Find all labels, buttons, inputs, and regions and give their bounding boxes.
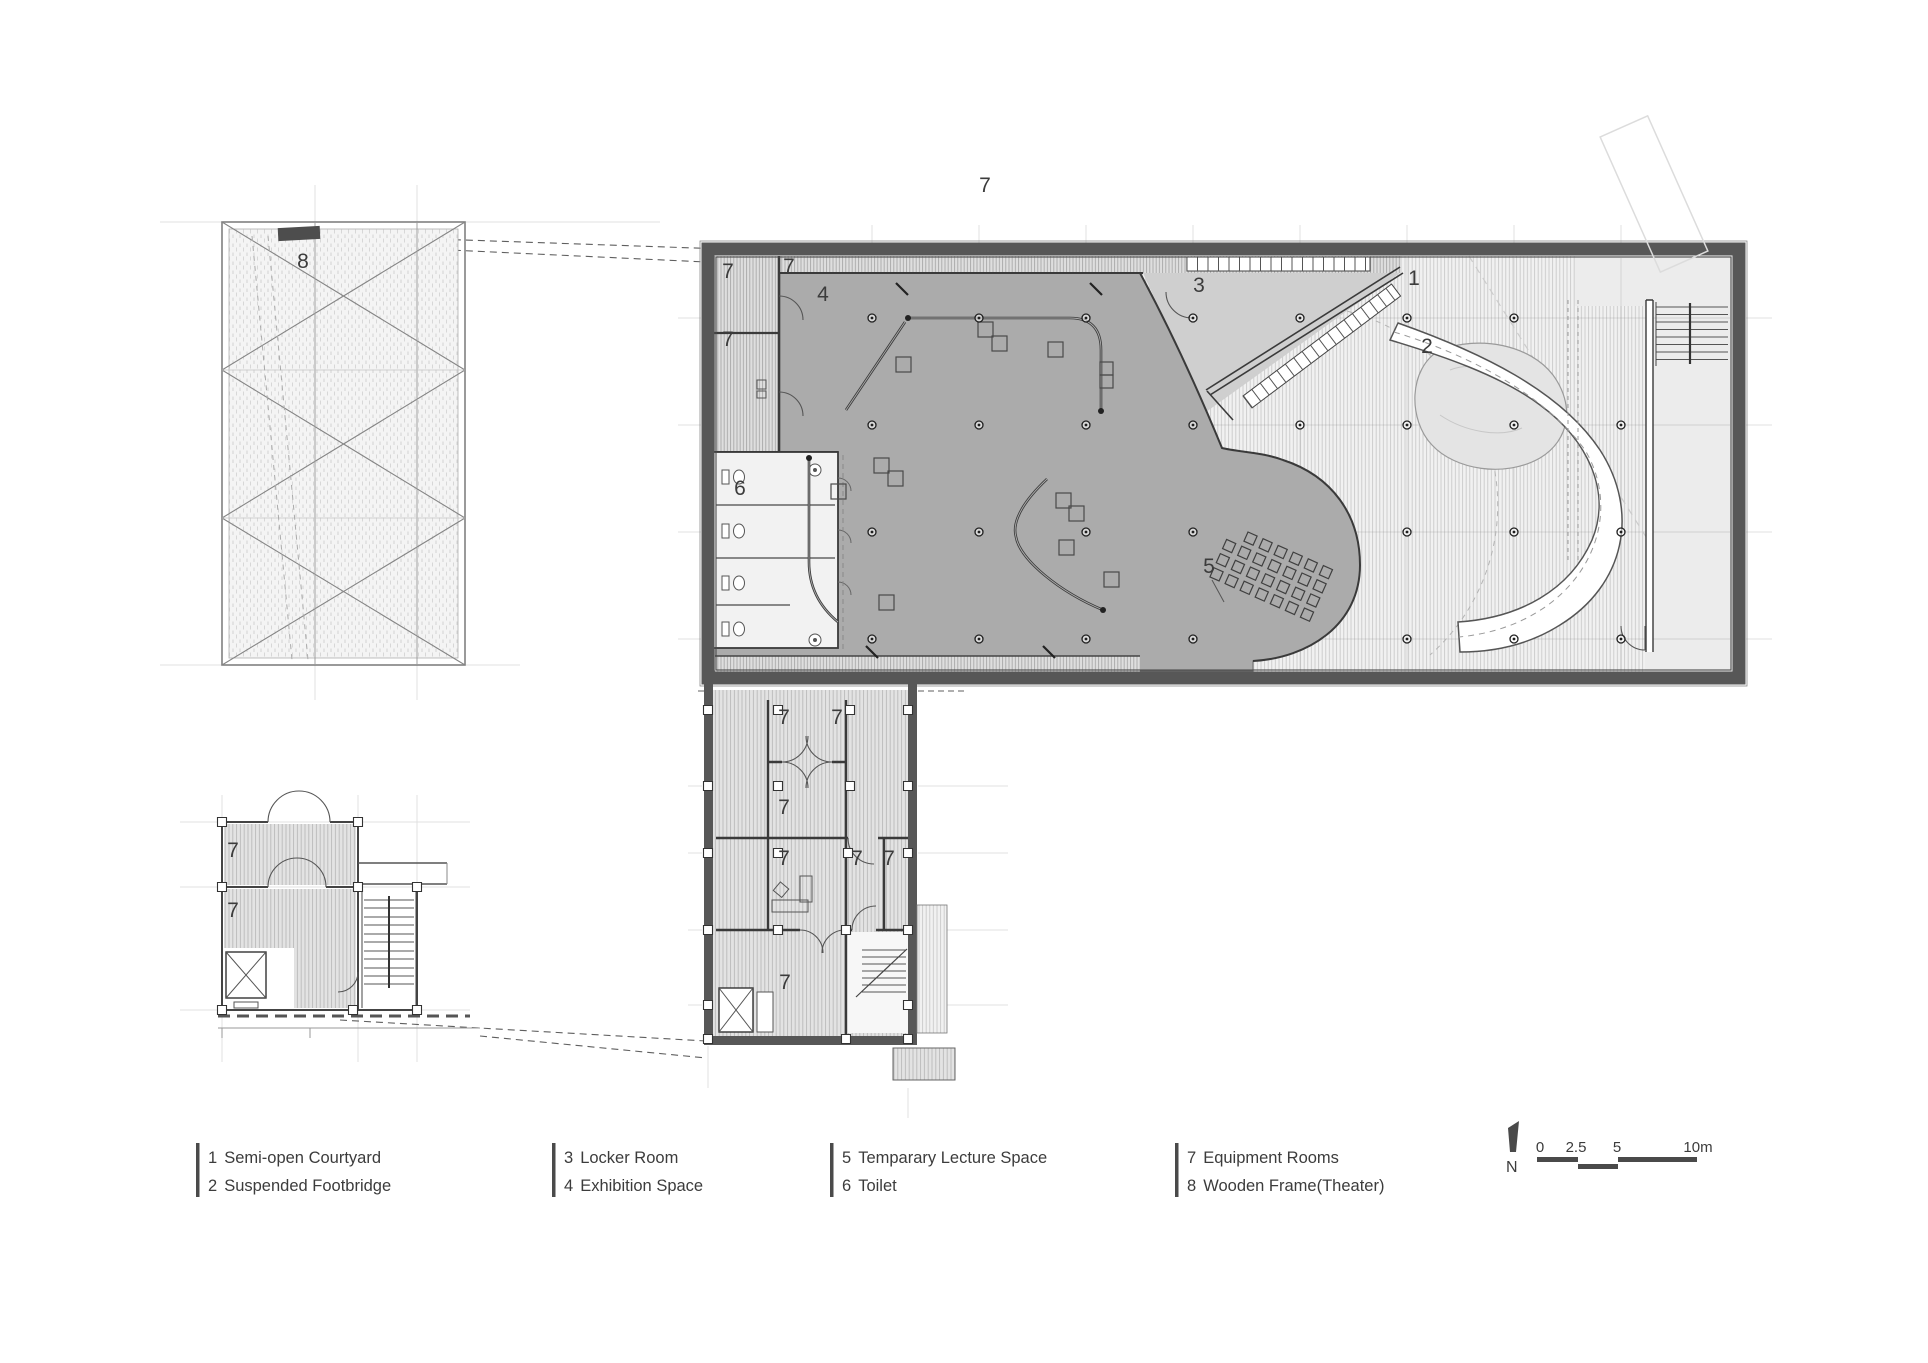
legend-item: 1Semi-open Courtyard [208, 1149, 381, 1167]
scale-tick: 0 [1536, 1139, 1544, 1156]
equipment-label: 7 [722, 328, 734, 351]
annex-bridge-stub [358, 863, 447, 884]
legend-item: 7Equipment Rooms [1187, 1149, 1339, 1167]
roof-plan [222, 222, 465, 665]
wooden-frame-label: 8 [297, 250, 309, 273]
annex-stairs [362, 890, 416, 1008]
scale-tick: 2.5 [1566, 1139, 1587, 1156]
legend-item: 8Wooden Frame(Theater) [1187, 1177, 1384, 1195]
equipment-label: 7 [227, 839, 239, 862]
legend-item: 6Toilet [842, 1177, 897, 1195]
toilet-label: 6 [734, 477, 746, 500]
toilet-block [710, 452, 851, 650]
equipment-label: 7 [778, 847, 790, 870]
scale-tick: 10m [1683, 1139, 1712, 1156]
floor-plan-canvas: 7 8 7 7 7 4 6 3 1 2 5 7 7 7 7 7 7 7 7 7 … [0, 0, 1928, 1363]
annex-plan [218, 791, 481, 1038]
wooden-frame-marker [278, 226, 321, 241]
lower-wing [704, 684, 956, 1080]
wing-exterior-wall [704, 1036, 917, 1045]
roof-area-label: 7 [979, 174, 991, 197]
wing-stub [893, 1048, 955, 1080]
exhibition-label: 4 [817, 283, 829, 306]
lecture-label: 5 [1203, 555, 1215, 578]
equipment-label: 7 [778, 706, 790, 729]
north-compass: N [1506, 1121, 1519, 1176]
wing-elevator [719, 988, 773, 1032]
floor-plan-drawing: 7 8 7 7 7 4 6 3 1 2 5 7 7 7 7 7 7 7 7 7 … [0, 0, 1928, 1363]
equipment-label: 7 [883, 847, 895, 870]
equipment-label: 7 [783, 255, 795, 278]
legend-item: 4Exhibition Space [564, 1177, 703, 1195]
legend-item: 2Suspended Footbridge [208, 1177, 391, 1195]
equipment-label: 7 [779, 971, 791, 994]
equipment-label: 7 [851, 847, 863, 870]
equipment-label: 7 [227, 899, 239, 922]
footbridge-label: 2 [1421, 335, 1433, 358]
equipment-label: 7 [722, 260, 734, 283]
legend: 1Semi-open Courtyard 2Suspended Footbrid… [196, 1143, 1384, 1197]
scale-tick: 5 [1613, 1139, 1621, 1156]
courtyard-label: 1 [1408, 267, 1420, 290]
wing-side-paving [917, 905, 947, 1033]
legend-item: 5Temparary Lecture Space [842, 1149, 1047, 1167]
equipment-label: 7 [778, 796, 790, 819]
scale-bar: 0 2.5 5 10m [1536, 1139, 1713, 1169]
locker-label: 3 [1193, 274, 1205, 297]
legend-item: 3Locker Room [564, 1149, 678, 1167]
main-plan [700, 116, 1747, 686]
north-arrow-icon [1508, 1121, 1519, 1152]
north-label: N [1506, 1159, 1518, 1176]
equipment-label: 7 [831, 706, 843, 729]
